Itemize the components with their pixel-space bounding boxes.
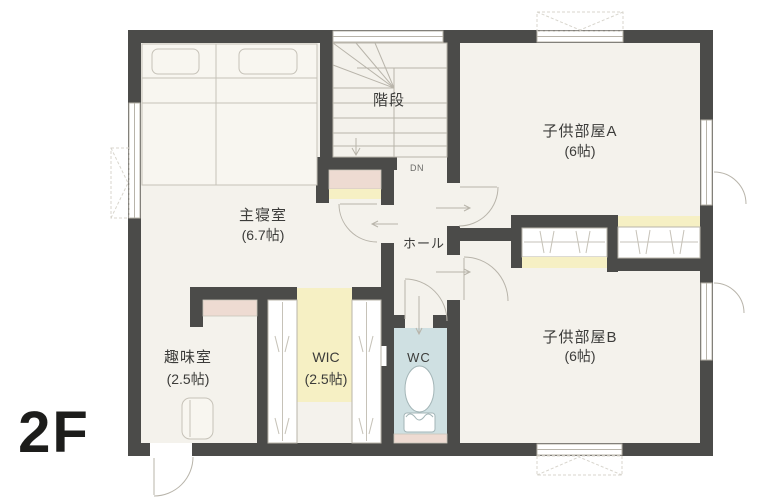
- closet-a-folding-door: [618, 216, 700, 227]
- desk: [182, 398, 213, 439]
- closet-shelf: [329, 170, 381, 189]
- closet-folding-door: [329, 189, 381, 199]
- label-child-room-b-size: (6帖): [564, 348, 595, 364]
- window-child-a-top: [537, 12, 623, 42]
- label-hall: ホール: [403, 236, 445, 251]
- label-hobby-room: 趣味室: [164, 349, 212, 366]
- master-closet: [329, 170, 381, 199]
- label-child-room-a-size: (6帖): [564, 143, 595, 159]
- window-master-left: [111, 103, 140, 218]
- wc-towel-bar: [382, 346, 387, 366]
- wc-window-strip: [394, 434, 447, 443]
- label-stairs-dn: DN: [410, 163, 424, 173]
- bed-double: [142, 44, 317, 185]
- hobby-shelf: [203, 300, 257, 316]
- floor-plan-page: 主寝室 (6.7帖) 階段 DN ホール 子供部屋A (6帖) 子供部屋B (6…: [0, 0, 768, 504]
- floor-label-2f: 2F: [18, 400, 90, 465]
- pillow: [152, 49, 199, 74]
- closet-b-folding-door: [522, 257, 607, 268]
- window-child-b-right: [701, 283, 744, 360]
- label-wic: WIC: [312, 349, 339, 365]
- label-child-room-b: 子供部屋B: [542, 329, 617, 346]
- window-child-a-right: [701, 120, 746, 205]
- pillow: [239, 49, 297, 74]
- label-wc: WC: [407, 350, 431, 365]
- label-wic-size: (2.5帖): [305, 371, 348, 387]
- window-stairs-top: [333, 31, 443, 42]
- floor-plan: 主寝室 (6.7帖) 階段 DN ホール 子供部屋A (6帖) 子供部屋B (6…: [0, 0, 768, 504]
- label-master-bedroom: 主寝室: [239, 206, 287, 224]
- toilet-icon: [404, 366, 435, 432]
- label-child-room-a: 子供部屋A: [542, 123, 617, 140]
- label-stairs: 階段: [373, 92, 405, 109]
- label-hobby-room-size: (2.5帖): [167, 371, 210, 387]
- window-child-b-bottom: [537, 444, 622, 475]
- label-master-bedroom-size: (6.7帖): [242, 227, 285, 243]
- door-hobby-exterior: [150, 443, 193, 496]
